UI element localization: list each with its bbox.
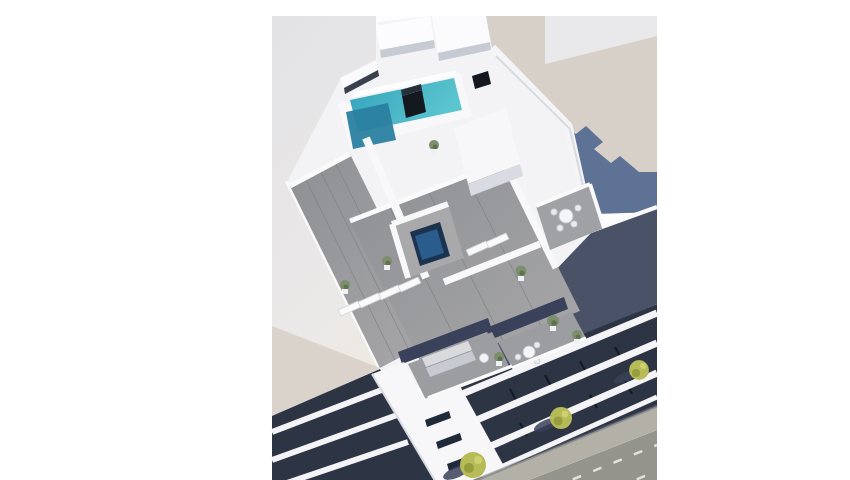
coffee-table [480, 354, 489, 363]
round-table [559, 209, 573, 223]
architectural-render-photo [40, 16, 850, 480]
round-table-small [523, 346, 535, 358]
render-canvas [40, 16, 850, 480]
